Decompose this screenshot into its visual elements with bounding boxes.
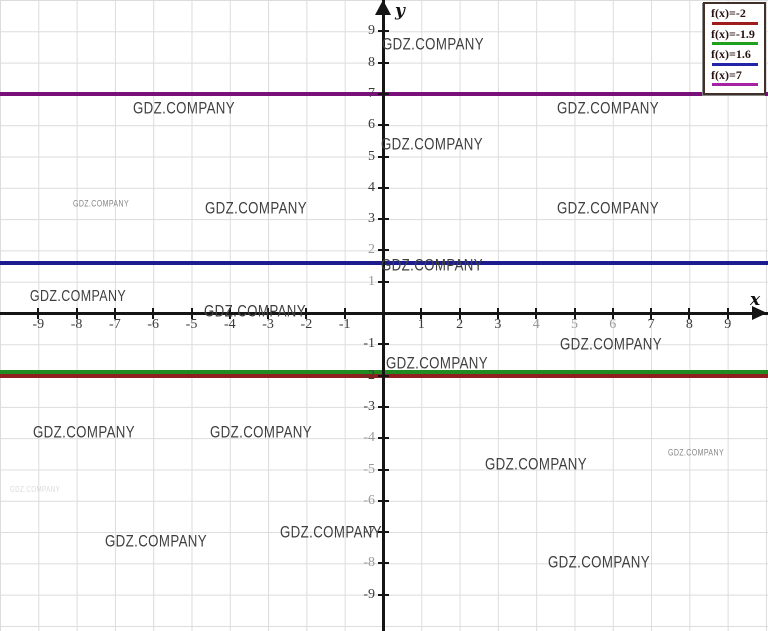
legend-label: f(x)=7 (711, 68, 764, 84)
x-tick-label: 6 (609, 318, 616, 332)
y-axis-arrow-icon (375, 0, 391, 15)
legend-entry: f(x)=7 (711, 68, 764, 87)
watermark: GDZ.COMPANY (204, 303, 306, 320)
x-tick-label: -1 (339, 318, 351, 332)
legend-swatch (712, 63, 758, 66)
coordinate-plane: x y -9-8-7-6-5-4-3-2-1123456789-9-8-7-6-… (0, 0, 768, 631)
y-tick (378, 343, 389, 345)
x-tick-label: -7 (109, 318, 121, 332)
watermark: GDZ.COMPANY (30, 289, 126, 305)
watermark: GDZ.COMPANY (10, 486, 60, 494)
watermark: GDZ.COMPANY (133, 100, 235, 117)
y-tick-label: -8 (347, 555, 375, 572)
watermark: GDZ.COMPANY (382, 36, 484, 53)
y-tick-label: -2 (347, 368, 375, 385)
legend-swatch (712, 83, 758, 86)
watermark: GDZ.COMPANY (381, 136, 483, 153)
y-tick (378, 249, 389, 251)
watermark: GDZ.COMPANY (386, 355, 488, 372)
watermark: GDZ.COMPANY (73, 200, 129, 209)
watermark: GDZ.COMPANY (210, 424, 312, 441)
legend-swatch (712, 22, 758, 25)
watermark: GDZ.COMPANY (557, 200, 659, 217)
y-tick-label: -5 (347, 462, 375, 479)
watermark: GDZ.COMPANY (105, 533, 207, 550)
y-tick-label: 7 (347, 86, 375, 103)
x-tick-label: 5 (571, 318, 578, 332)
watermark: GDZ.COMPANY (560, 336, 662, 353)
watermark: GDZ.COMPANY (33, 424, 135, 441)
x-axis-label: x (750, 290, 760, 310)
legend-label: f(x)=-2 (711, 6, 764, 22)
legend-swatch (712, 42, 758, 45)
y-tick-label: -3 (347, 399, 375, 416)
y-tick (378, 218, 389, 220)
y-tick-label: 1 (347, 274, 375, 291)
x-tick-label: 1 (418, 318, 425, 332)
watermark: GDZ.COMPANY (485, 456, 587, 473)
y-tick-label: -9 (347, 587, 375, 604)
legend-entry: f(x)=-1.9 (711, 27, 764, 46)
y-tick (378, 500, 389, 502)
legend-label: f(x)=-1.9 (711, 27, 764, 43)
y-tick-label: -1 (347, 336, 375, 353)
y-tick-label: 6 (347, 117, 375, 134)
x-tick-label: -8 (71, 318, 83, 332)
y-tick (378, 375, 389, 377)
y-tick-label: 5 (347, 149, 375, 166)
y-tick (378, 62, 389, 64)
y-tick-label: 3 (347, 211, 375, 228)
watermark: GDZ.COMPANY (557, 100, 659, 117)
watermark: GDZ.COMPANY (280, 524, 382, 541)
x-tick-label: 9 (724, 318, 731, 332)
x-tick-label: 7 (648, 318, 655, 332)
y-tick (378, 30, 389, 32)
y-tick (378, 93, 389, 95)
watermark: GDZ.COMPANY (205, 200, 307, 217)
x-tick-label: -9 (32, 318, 44, 332)
y-tick (378, 156, 389, 158)
watermark: GDZ.COMPANY (668, 449, 724, 458)
legend: f(x)=-2f(x)=-1.9f(x)=1.6f(x)=7 (703, 2, 766, 95)
legend-entry: f(x)=-2 (711, 6, 764, 25)
watermark: GDZ.COMPANY (381, 257, 483, 274)
x-tick-label: 3 (494, 318, 501, 332)
y-tick (378, 437, 389, 439)
x-tick-label: 8 (686, 318, 693, 332)
x-tick-label: 4 (533, 318, 540, 332)
y-tick (378, 594, 389, 596)
y-tick-label: 4 (347, 180, 375, 197)
y-tick-label: -4 (347, 430, 375, 447)
y-tick-label: 9 (347, 23, 375, 40)
x-tick-label: 2 (456, 318, 463, 332)
y-tick (378, 406, 389, 408)
y-tick (378, 469, 389, 471)
x-tick-label: -6 (147, 318, 159, 332)
y-tick (378, 562, 389, 564)
y-tick (378, 187, 389, 189)
x-tick-label: -5 (186, 318, 198, 332)
y-tick-label: 8 (347, 55, 375, 72)
legend-entry: f(x)=1.6 (711, 47, 764, 66)
y-tick (378, 281, 389, 283)
y-axis-label: y (395, 1, 405, 21)
legend-label: f(x)=1.6 (711, 47, 764, 63)
y-tick-label: -6 (347, 493, 375, 510)
y-tick (378, 124, 389, 126)
watermark: GDZ.COMPANY (548, 554, 650, 571)
y-tick-label: 2 (347, 242, 375, 259)
